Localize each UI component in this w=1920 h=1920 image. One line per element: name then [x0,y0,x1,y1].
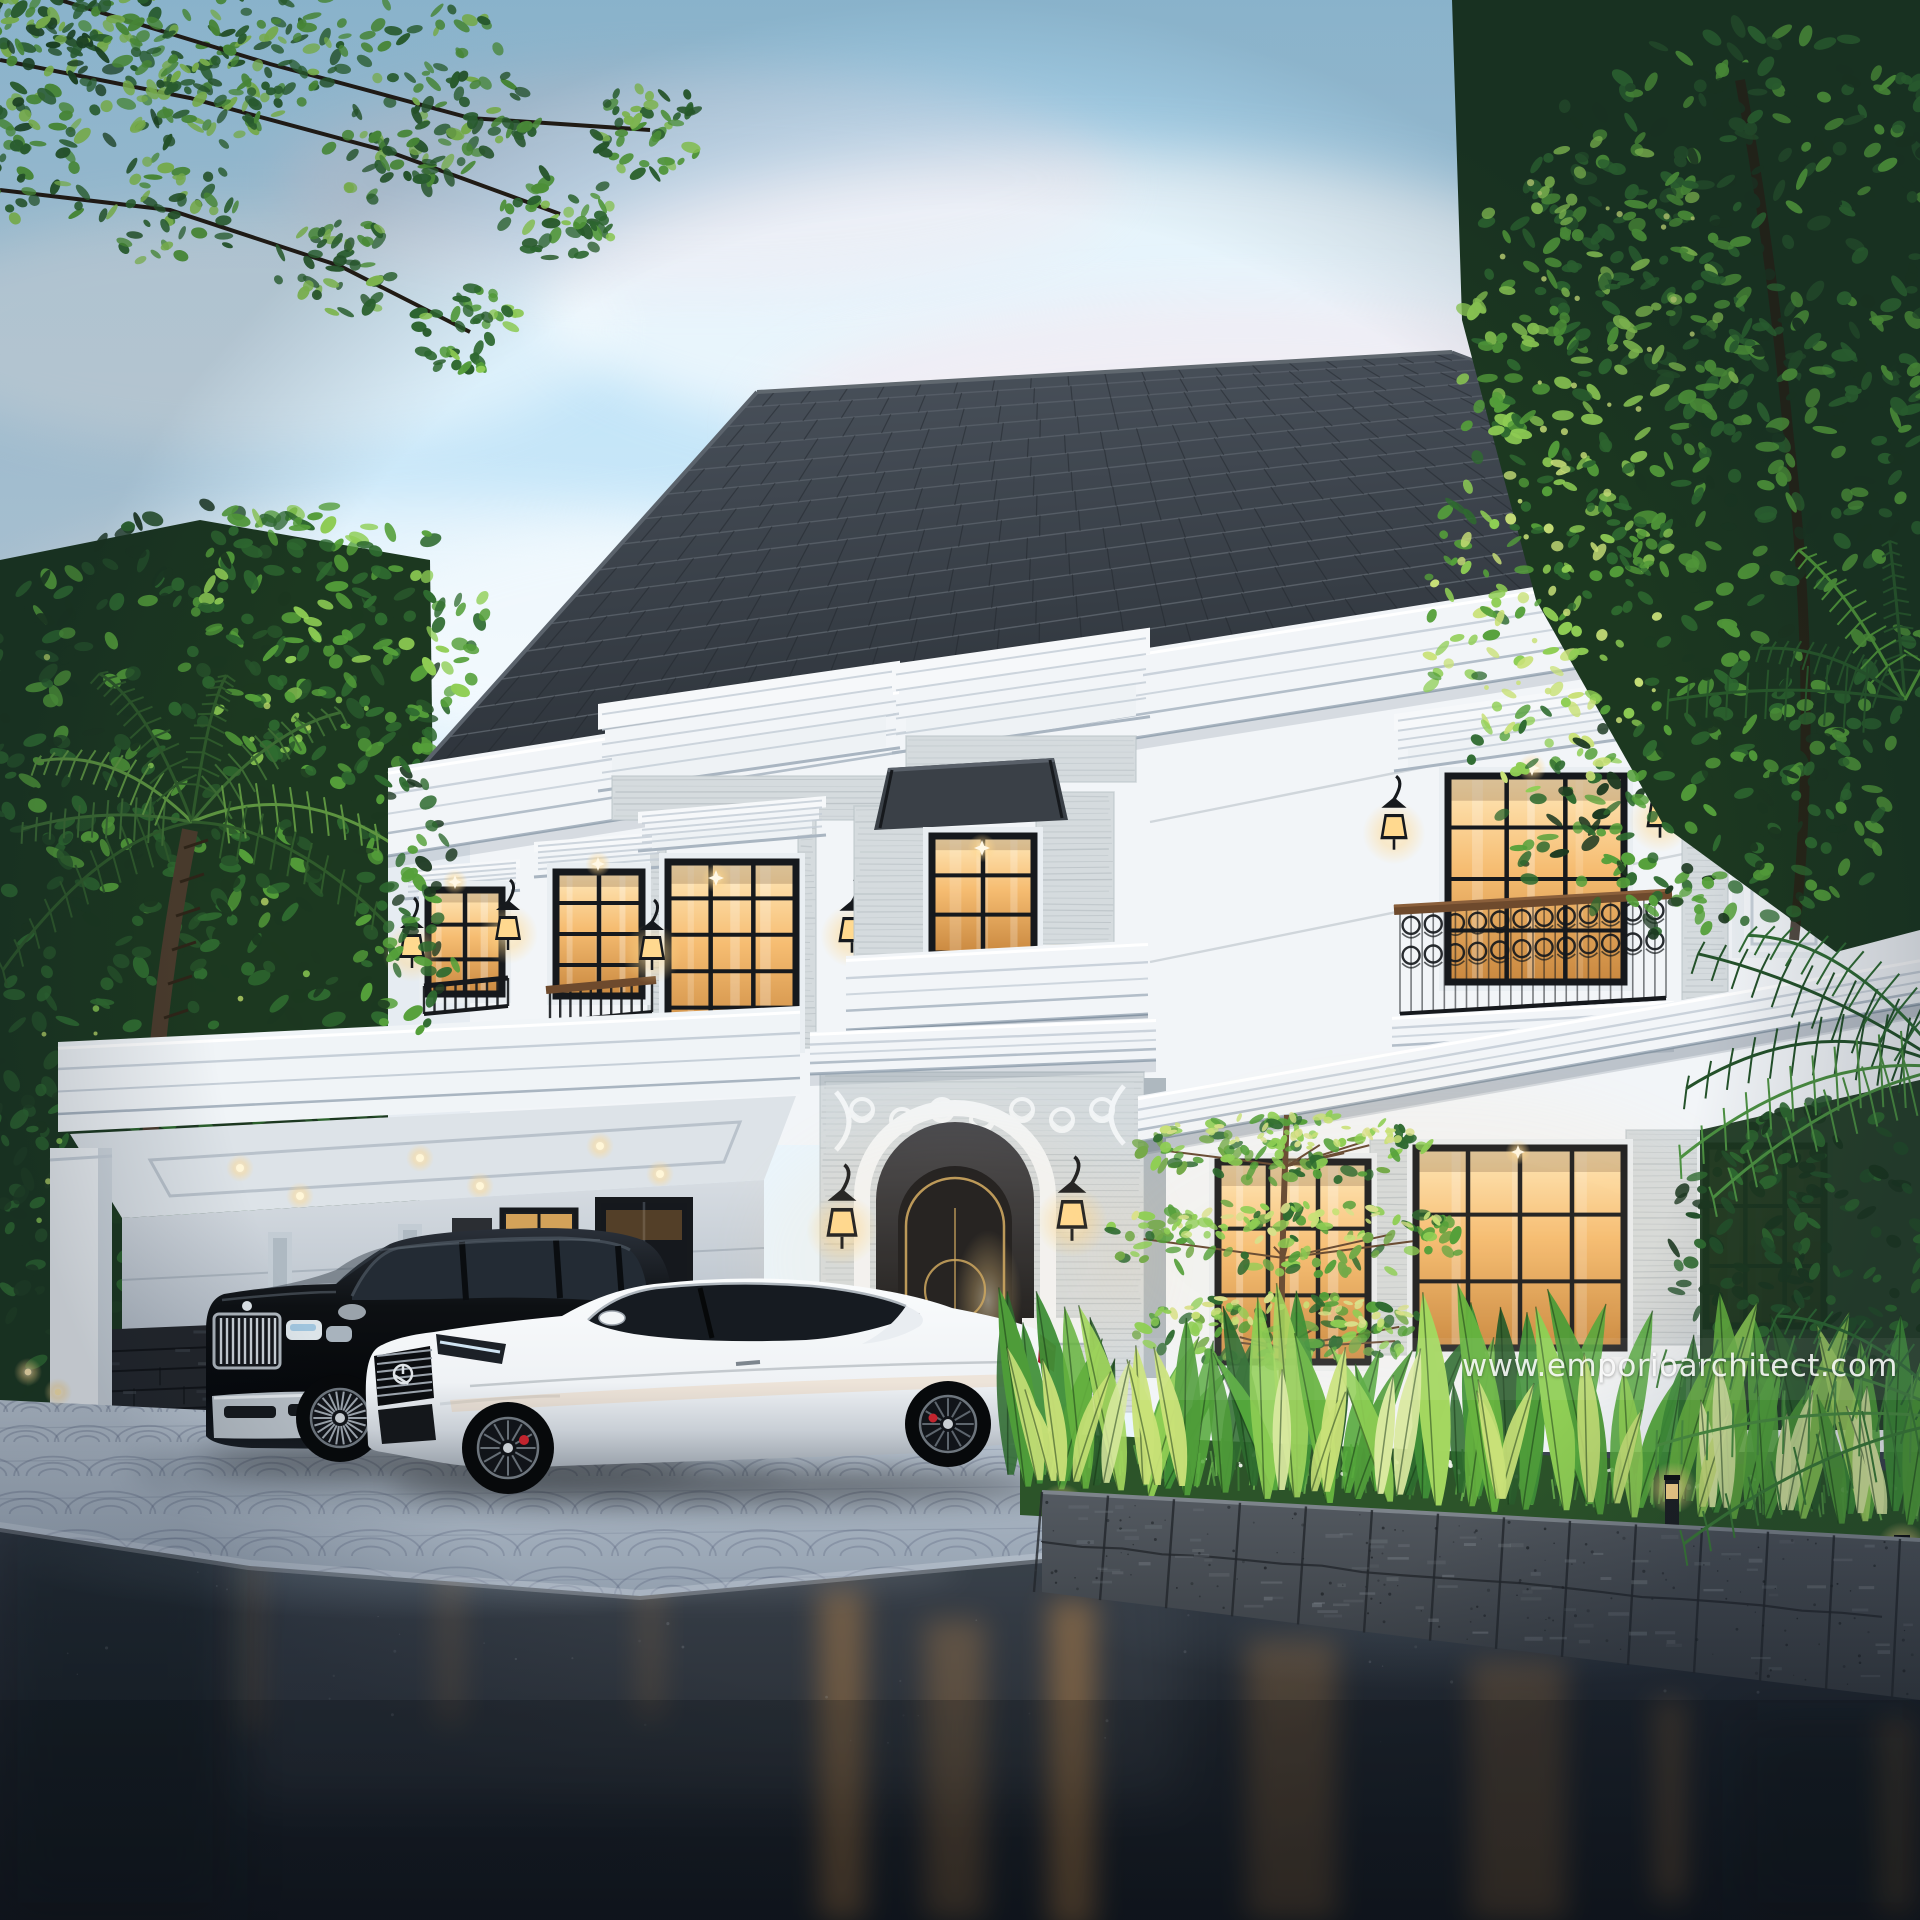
architectural-render: www.emporioarchitect.com [0,0,1920,1920]
color-grade [0,0,1920,1920]
render-canvas [0,0,1920,1920]
